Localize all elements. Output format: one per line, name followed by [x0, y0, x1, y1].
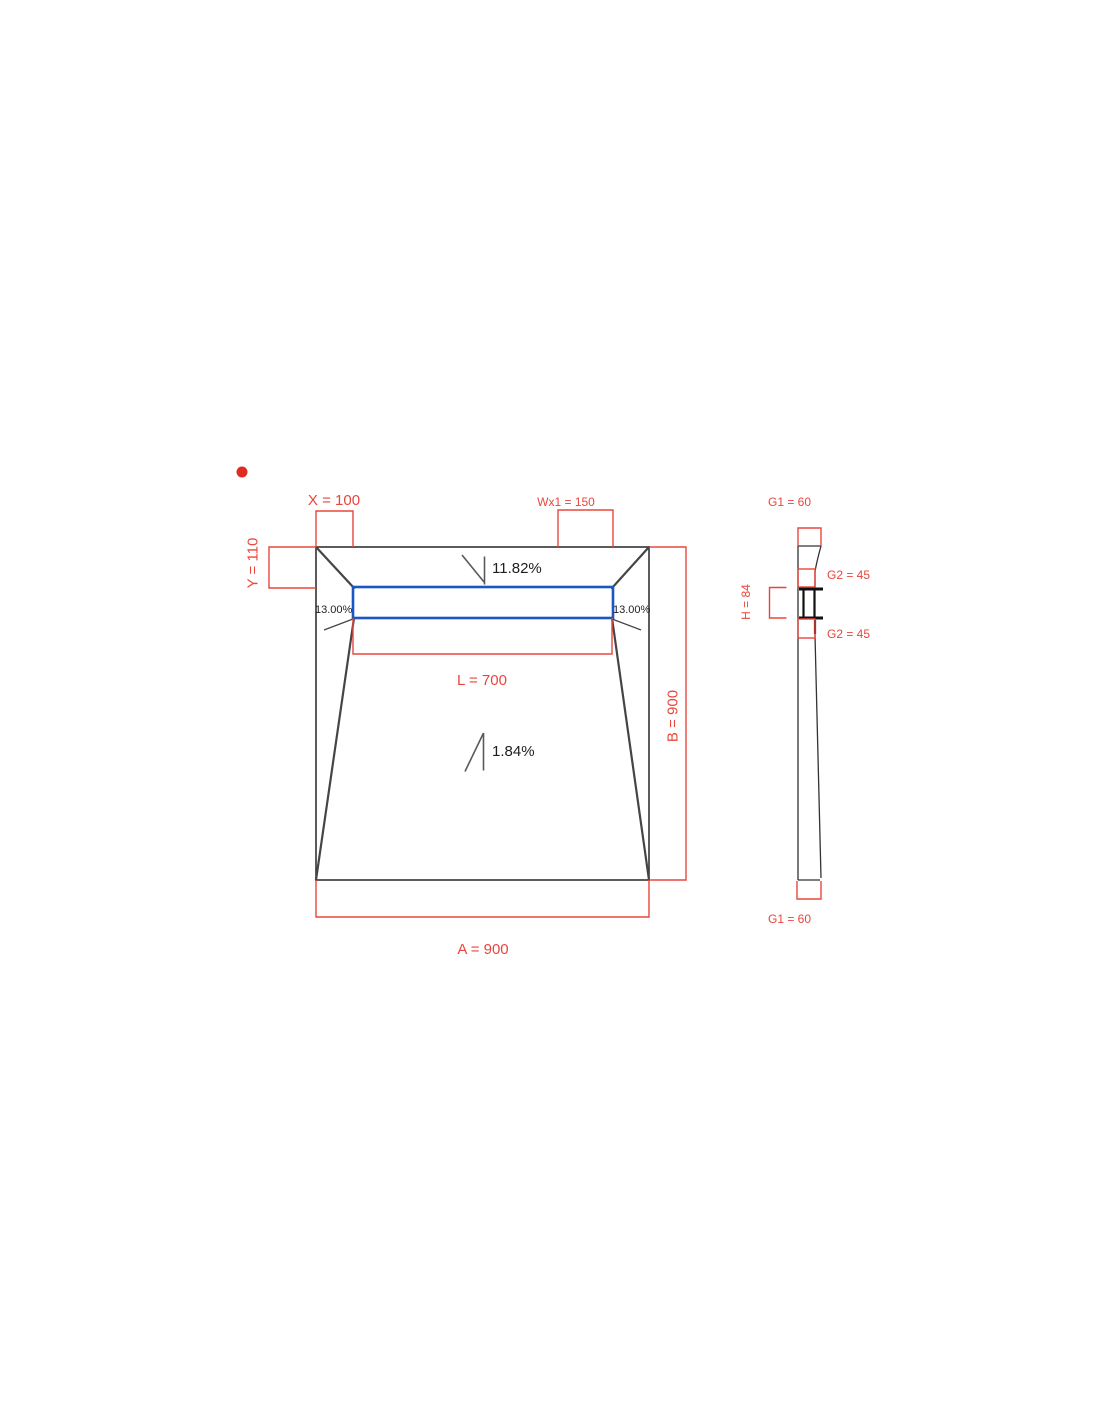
dim-g2-upper-box — [798, 569, 815, 587]
slope-bottom-label: 1.84% — [492, 743, 535, 760]
dim-g1-bottom-label: G1 = 60 — [768, 912, 811, 926]
dim-wx1-label: Wx1 = 150 — [537, 495, 595, 509]
drawing-canvas: X = 100 Y = 110 Wx1 = 150 L = 700 B = 90… — [0, 0, 1100, 1422]
fold-diagonal-top-left — [316, 547, 354, 588]
dim-g1-top-label: G1 = 60 — [768, 495, 811, 509]
plan-outer-square — [316, 547, 649, 880]
slope-right-leader-line — [612, 619, 641, 630]
shower-base-technical-drawing: X = 100 Y = 110 Wx1 = 150 L = 700 B = 90… — [0, 0, 1100, 1422]
profile-right-edge-upper — [815, 546, 821, 588]
dim-g2-upper-label: G2 = 45 — [827, 568, 870, 582]
dim-y-label: Y = 110 — [245, 538, 262, 589]
section-view: G1 = 60 G2 = 45 G2 = 45 G1 = 60 H = 84 — [739, 495, 870, 926]
red-marker-dot — [237, 467, 248, 478]
dim-b-label: B = 900 — [665, 690, 682, 742]
dim-g2-lower-box — [798, 619, 815, 638]
slope-symbol-top-diagonal — [462, 555, 484, 582]
slope-right-label: 13.00% — [613, 604, 651, 616]
drain-channel-section — [799, 589, 823, 634]
dim-wx1-box — [558, 510, 613, 547]
dim-a-label: A = 900 — [457, 941, 508, 958]
dim-a-extension — [316, 880, 649, 917]
dim-g2-lower-label: G2 = 45 — [827, 627, 870, 641]
slope-symbol-top — [462, 555, 485, 585]
slope-left-label: 13.00% — [315, 604, 353, 616]
profile-right-edge-lower — [815, 619, 821, 878]
dim-g1-bottom-box — [797, 881, 821, 899]
fold-diagonal-bottom-right — [612, 618, 649, 880]
dim-g1-top-box — [798, 528, 821, 546]
dim-x-label: X = 100 — [308, 492, 360, 509]
slope-symbol-bottom-diagonal — [465, 733, 484, 772]
plan-view: X = 100 Y = 110 Wx1 = 150 L = 700 B = 90… — [245, 492, 687, 958]
slope-top-label: 11.82% — [492, 560, 542, 577]
fold-diagonal-top-right — [612, 547, 649, 588]
slope-left-leader-line — [324, 619, 353, 630]
dim-h-label: H = 84 — [739, 584, 753, 620]
dim-h-bracket — [770, 588, 787, 619]
fold-diagonal-bottom-left — [316, 618, 354, 880]
dim-l-label: L = 700 — [457, 672, 507, 689]
linear-drain-channel — [353, 587, 613, 618]
dim-y-box — [269, 547, 316, 588]
dim-x-box — [316, 511, 353, 547]
dim-l-box — [353, 618, 612, 654]
slope-symbol-bottom — [465, 733, 484, 772]
